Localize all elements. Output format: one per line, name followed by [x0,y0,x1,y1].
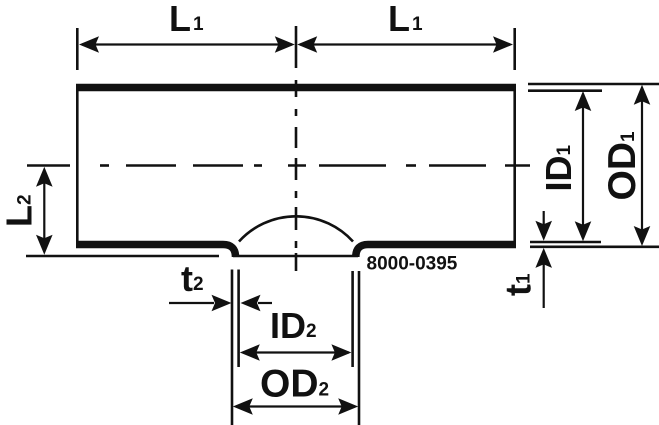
svg-text:8000-0395: 8000-0395 [367,254,458,275]
